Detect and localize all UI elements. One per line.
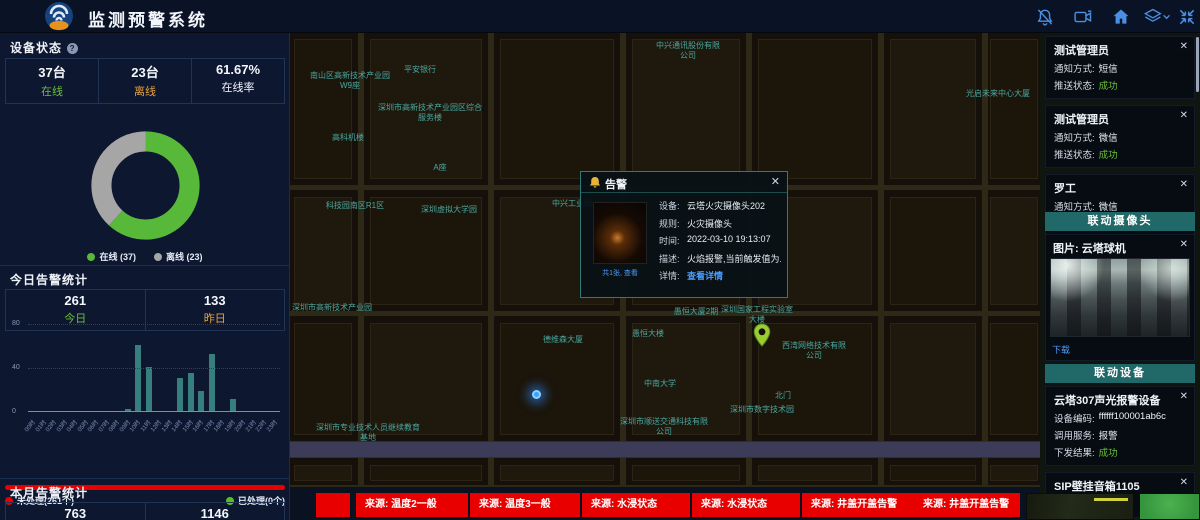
month-stat: 763 — [6, 503, 146, 520]
alert-ticker-stub[interactable] — [316, 493, 350, 517]
alert-detail-rows: 设备:云塔火灾摄像头202规则:火灾摄像头时间:2022-03-10 19:13… — [659, 199, 781, 287]
y-tick-label: 40 — [12, 364, 20, 371]
camera-image-title: 图片: 云塔球机 — [1053, 240, 1126, 256]
map-place-label: 德维森大厦 — [528, 335, 598, 345]
bar — [198, 391, 204, 411]
city-block — [500, 39, 614, 179]
field-label: 推送状态: — [1054, 78, 1095, 92]
device-stat-label: 在线率 — [192, 79, 284, 95]
city-block — [500, 465, 614, 481]
device-name: 云塔307声光报警设备 — [1054, 392, 1186, 408]
field-label: 推送状态: — [1054, 147, 1095, 161]
page-title: 监测预警系统 — [88, 6, 208, 31]
field-label: 时间: — [659, 234, 687, 247]
notification-method-row: 通知方式:微信 — [1054, 199, 1186, 213]
alert-ticker-item[interactable]: 来源: 水浸状态 — [582, 493, 690, 517]
field-value: 微信 — [1099, 199, 1118, 213]
notification-name-row: 测试管理员✕ — [1054, 111, 1186, 127]
alert-ticker-bar: 来源: 温度2一般来源: 温度3一般来源: 水浸状态来源: 水浸状态来源: 井盖… — [290, 487, 1040, 520]
close-icon[interactable]: ✕ — [771, 175, 780, 188]
monitoring-dashboard: 监测预警系统 — [0, 0, 1200, 520]
city-block — [758, 323, 872, 435]
chevron-down-icon — [1164, 15, 1170, 18]
alert-popup: 告警 ✕ 共1张, 查看 设备:云塔火灾摄像头202规则:火灾摄像头时间:202… — [580, 171, 788, 298]
notification-card: 测试管理员✕通知方式:短信推送状态:成功 — [1045, 36, 1195, 99]
alert-location-pin[interactable] — [753, 323, 771, 347]
notification-method-row: 通知方式:短信 — [1054, 61, 1186, 75]
field-value: 火焰报警,当前触发值为... — [687, 252, 781, 265]
close-icon[interactable]: ✕ — [1180, 477, 1188, 488]
month-stat: 1146 — [146, 503, 285, 520]
video-feed-thumbnail[interactable] — [1026, 493, 1134, 520]
bell-off-icon[interactable] — [1034, 7, 1056, 27]
notification-name: 罗工 — [1054, 180, 1186, 196]
notification-name-row: 测试管理员✕ — [1054, 42, 1186, 58]
notification-card: 测试管理员✕通知方式:微信推送状态:成功 — [1045, 105, 1195, 168]
city-block — [890, 197, 976, 305]
field-label: 通知方式: — [1054, 199, 1095, 213]
map-place-label: 光启未来中心大厦 — [956, 89, 1040, 99]
donut-legend-item: 在线 (37) — [87, 250, 136, 263]
device-stat: 37台在线 — [6, 59, 99, 103]
bar — [125, 409, 131, 411]
video-osd-overlay — [1094, 498, 1128, 501]
device-field-row: 调用服务:报警 — [1054, 428, 1186, 442]
video-camera-icon[interactable] — [1072, 7, 1094, 27]
field-value: 短信 — [1099, 61, 1118, 75]
map-place-label: 深圳市顺送交通科技有限公司 — [618, 417, 710, 437]
close-icon[interactable]: ✕ — [1180, 41, 1188, 52]
city-block — [632, 465, 740, 481]
map-place-label: 科技园南区R1区 — [304, 201, 406, 211]
bar — [135, 345, 141, 411]
map-place-label: 平安银行 — [390, 65, 450, 75]
notification-status-row: 推送状态:成功 — [1054, 78, 1186, 92]
map-place-label: 深圳市高新技术产业园 — [292, 303, 372, 313]
gridline — [28, 324, 280, 325]
city-block — [990, 323, 1038, 435]
camera-snapshot-image[interactable] — [1050, 258, 1190, 337]
city-block — [990, 465, 1038, 481]
alert-ticker-item[interactable]: 来源: 井盖开盖告警 — [914, 493, 1020, 517]
y-tick-label: 0 — [12, 408, 16, 415]
alert-popup-title: 告警 — [605, 176, 627, 192]
alert-field-row: 描述:火焰报警,当前触发值为... — [659, 252, 781, 265]
month-stat-value: 763 — [6, 506, 145, 520]
legend-label: 离线 (23) — [166, 250, 203, 263]
notification-method-row: 通知方式:微信 — [1054, 130, 1186, 144]
city-block — [890, 465, 976, 481]
map-place-label: 深圳市高新技术产业园区综合服务楼 — [378, 103, 482, 123]
map-place-label: 深圳国家工程实验室大楼 — [718, 305, 796, 325]
device-name: SIP壁挂音箱1105 — [1054, 478, 1186, 494]
field-label: 描述: — [659, 252, 687, 265]
map-place-label: 高科机楼 — [318, 133, 378, 143]
donut-legend: 在线 (37)离线 (23) — [0, 250, 290, 263]
left-stats-panel: 设备状态? 37台在线23台离线61.67%在线率 在线 (37)离线 (23)… — [0, 33, 290, 520]
close-icon[interactable]: ✕ — [1180, 110, 1188, 121]
field-value: 微信 — [1099, 130, 1118, 144]
city-block — [990, 197, 1038, 305]
app-logo-icon — [42, 1, 76, 32]
field-label: 规则: — [659, 217, 687, 230]
bar — [177, 378, 183, 411]
legend-dot-icon — [154, 253, 162, 261]
bar-plot-area: 00时01时02时03时04时05时06时07时08时09时10时11时12时1… — [28, 324, 280, 412]
field-value: 报警 — [1099, 428, 1118, 442]
camera-feed-thumbnail[interactable] — [1139, 493, 1200, 520]
layers-icon[interactable] — [1140, 7, 1174, 27]
city-block — [370, 323, 482, 435]
fullscreen-icon[interactable] — [1176, 7, 1198, 27]
device-name-row: 云塔307声光报警设备✕ — [1054, 392, 1186, 408]
notification-name: 测试管理员 — [1054, 111, 1186, 127]
field-label: 下发结果: — [1054, 445, 1095, 459]
month-stat-value: 1146 — [146, 506, 285, 520]
device-status-title: 设备状态? — [10, 39, 78, 56]
city-block — [294, 39, 352, 179]
linked-camera-section-title: 联动摄像头 — [1045, 212, 1195, 231]
map-place-label: 南山区高新技术产业园W9座 — [306, 71, 394, 91]
alarm-bell-icon — [589, 176, 601, 189]
city-block — [990, 39, 1038, 179]
field-label: 通知方式: — [1054, 130, 1095, 144]
close-icon[interactable]: ✕ — [1180, 179, 1188, 190]
map-place-label: 西湾网络技术有限公司 — [780, 341, 848, 361]
download-link[interactable]: 下载 — [1052, 343, 1070, 356]
map-place-label: 愚恒大楼 — [618, 329, 678, 339]
field-value: 火灾摄像头 — [687, 217, 732, 230]
city-block — [758, 465, 872, 481]
alert-snapshot-image[interactable] — [593, 202, 647, 264]
alert-field-row: 规则:火灾摄像头 — [659, 217, 781, 230]
city-block — [890, 323, 976, 435]
snapshot-view-link[interactable]: 共1张, 查看 — [587, 268, 653, 278]
field-value: 成功 — [1099, 78, 1118, 92]
right-panel: 测试管理员✕通知方式:短信推送状态:成功测试管理员✕通知方式:微信推送状态:成功… — [1040, 33, 1200, 520]
help-icon[interactable]: ? — [67, 43, 78, 54]
view-details-link[interactable]: 查看详情 — [687, 269, 723, 282]
field-value: 云塔火灾摄像头202 — [687, 199, 765, 212]
device-field-row: 下发结果:成功 — [1054, 445, 1186, 459]
legend-label: 在线 (37) — [99, 250, 136, 263]
field-label: 通知方式: — [1054, 61, 1095, 75]
device-stat-value: 37台 — [6, 62, 98, 81]
close-icon[interactable]: ✕ — [1180, 391, 1188, 402]
month-alerts-stats: 7631146 — [5, 502, 285, 520]
legend-dot-icon — [87, 253, 95, 261]
device-card: 云塔307声光报警设备✕设备编码:ffffff100001ab6c调用服务:报警… — [1045, 386, 1195, 466]
notification-name: 测试管理员 — [1054, 42, 1186, 58]
field-value: ffffff100001ab6c — [1099, 411, 1166, 425]
map-place-label: A座 — [420, 163, 460, 173]
main-road — [290, 441, 1040, 458]
device-status-stats: 37台在线23台离线61.67%在线率 — [5, 58, 285, 104]
x-tick-label: 23时 — [263, 418, 278, 434]
device-status-donut-chart — [88, 128, 203, 243]
map-place-label: 北门 — [768, 391, 798, 401]
bar — [146, 367, 152, 411]
alert-ticker-item[interactable]: 来源: 温度2一般 — [356, 493, 468, 517]
notification-status-row: 推送状态:成功 — [1054, 147, 1186, 161]
city-map[interactable]: 中兴通讯股份有限公司平安银行南山区高新技术产业园W9座光启未来中心大厦深圳市高新… — [290, 33, 1040, 520]
home-icon[interactable] — [1110, 7, 1132, 27]
city-block — [294, 323, 352, 435]
linked-camera-card: 图片: 云塔球机 ✕ 下载 — [1045, 234, 1195, 361]
city-block — [294, 197, 352, 305]
bar — [230, 399, 236, 411]
alert-ticker-item[interactable]: 来源: 水浸状态 — [692, 493, 800, 517]
bar — [209, 354, 215, 411]
scrollbar[interactable] — [1196, 37, 1199, 92]
field-value: 成功 — [1099, 445, 1118, 459]
top-header: 监测预警系统 — [0, 0, 1200, 33]
device-stat: 61.67%在线率 — [192, 59, 284, 103]
gridline — [28, 368, 280, 369]
map-place-label: 深圳市专业技术人员继续教育基地 — [316, 423, 420, 443]
alert-field-row: 时间:2022-03-10 19:13:07 — [659, 234, 781, 247]
hourly-alerts-bar-chart: 00时01时02时03时04时05时06时07时08时09时10时11时12时1… — [8, 291, 284, 441]
map-place-label: 中兴通讯股份有限公司 — [656, 41, 720, 61]
city-block — [890, 39, 976, 179]
donut-legend-item: 离线 (23) — [154, 250, 203, 263]
map-place-label: 中南大学 — [630, 379, 690, 389]
device-name-row: SIP壁挂音箱1105✕ — [1054, 478, 1186, 494]
city-block — [370, 465, 482, 481]
field-value: 2022-03-10 19:13:07 — [687, 234, 771, 247]
divider — [0, 265, 290, 266]
device-stat-value: 23台 — [99, 62, 191, 81]
divider — [0, 478, 290, 479]
field-label: 设备: — [659, 199, 687, 212]
field-label: 详情: — [659, 269, 687, 282]
field-label: 调用服务: — [1054, 428, 1095, 442]
y-tick-label: 80 — [12, 320, 20, 327]
alert-field-row: 设备:云塔火灾摄像头202 — [659, 199, 781, 212]
alert-ticker-item[interactable]: 来源: 温度3一般 — [470, 493, 580, 517]
alert-ticker-item[interactable]: 来源: 井盖开盖告警 — [802, 493, 914, 517]
alert-popup-header: 告警 ✕ — [581, 172, 787, 193]
device-stat-label: 在线 — [6, 83, 98, 99]
device-stat-label: 离线 — [99, 83, 191, 99]
device-stat: 23台离线 — [99, 59, 192, 103]
bar — [188, 373, 194, 412]
device-marker-blue-dot[interactable] — [532, 390, 541, 399]
device-field-row: 设备编码:ffffff100001ab6c — [1054, 411, 1186, 425]
field-label: 设备编码: — [1054, 411, 1095, 425]
device-stat-value: 61.67% — [192, 62, 284, 77]
today-alerts-title: 今日告警统计 — [10, 271, 88, 288]
alert-field-row: 详情:查看详情 — [659, 269, 781, 282]
notification-name-row: 罗工✕ — [1054, 180, 1186, 196]
field-value: 成功 — [1099, 147, 1118, 161]
linked-device-section-title: 联动设备 — [1045, 364, 1195, 383]
month-alerts-title: 本月告警统计 — [10, 484, 88, 501]
close-icon[interactable]: ✕ — [1180, 239, 1188, 250]
city-block — [758, 39, 872, 179]
city-block — [294, 465, 352, 481]
map-place-label: 深圳市数字技术园 — [708, 405, 816, 415]
map-place-label: 深圳虚拟大学园 — [398, 205, 500, 215]
